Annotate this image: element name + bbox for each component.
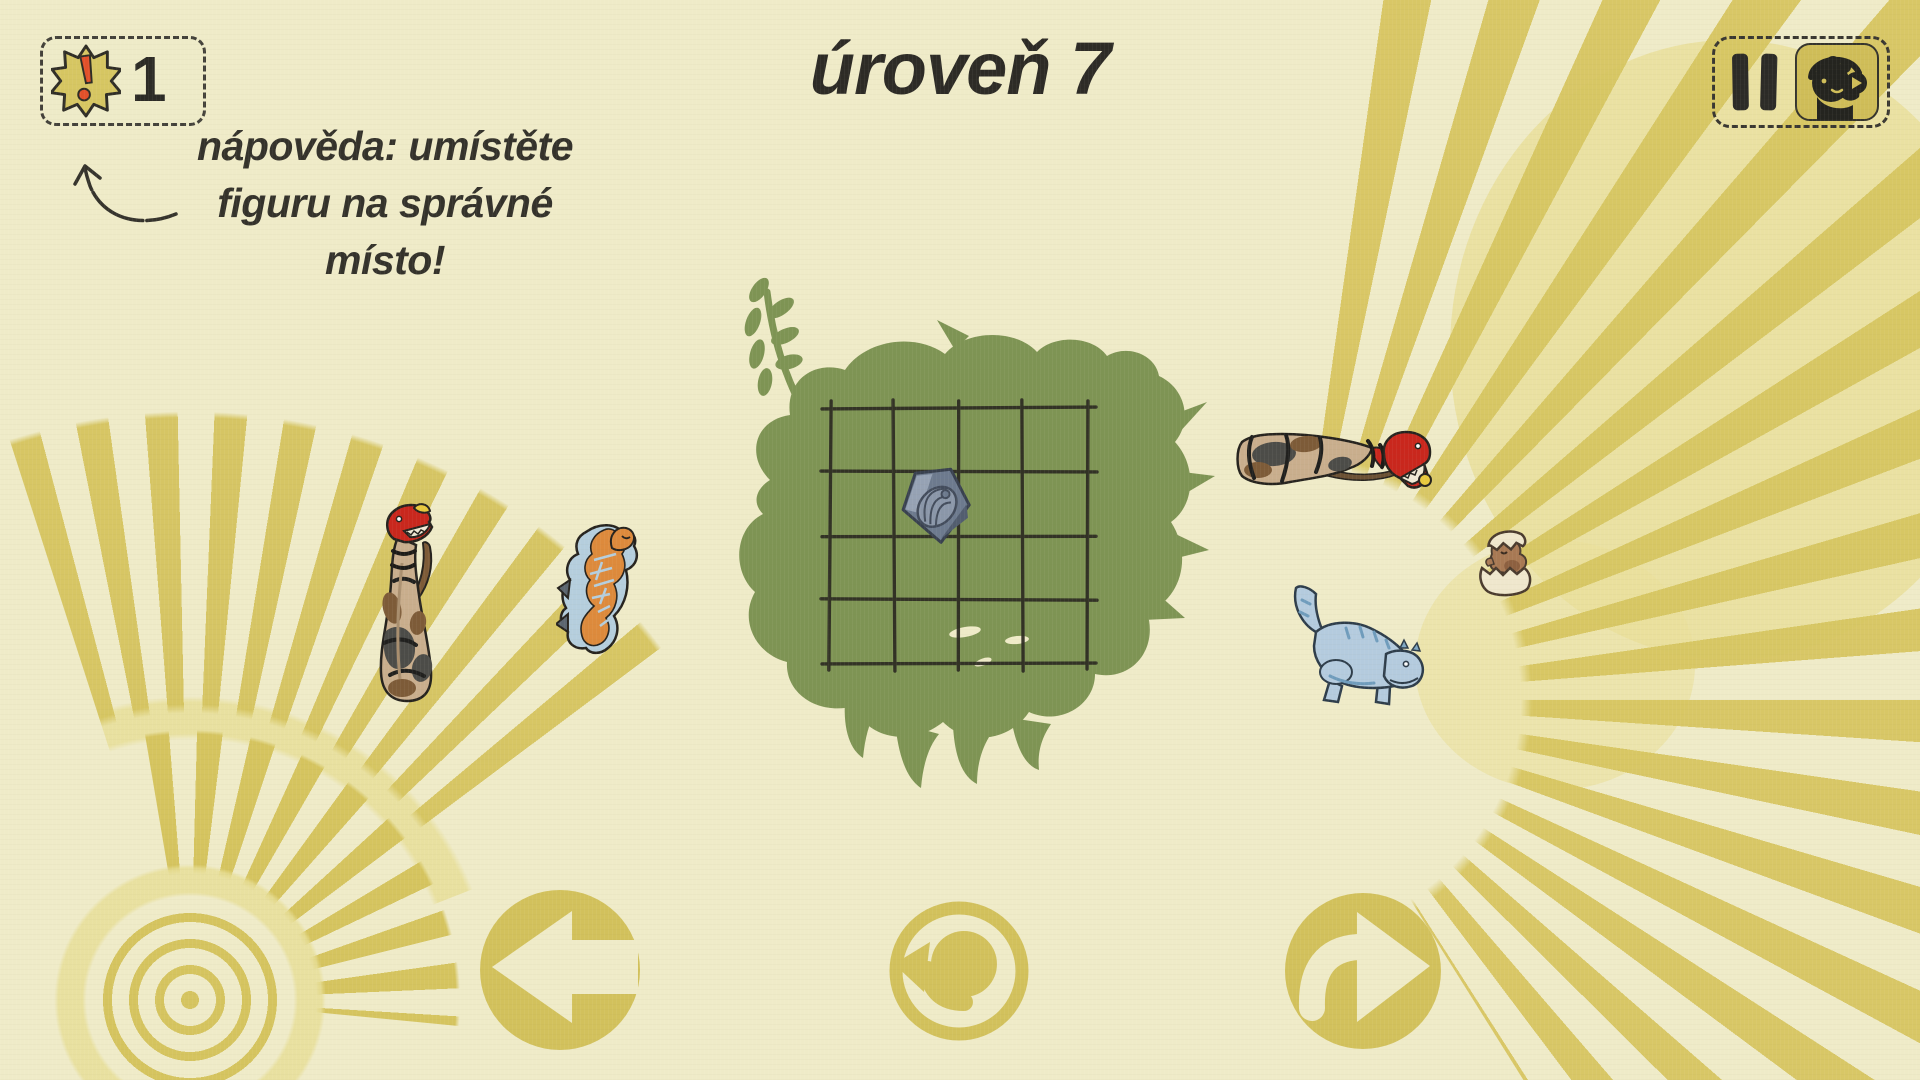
striped-raptor-lying-piece[interactable] [1232, 424, 1436, 500]
blue-carnotaurus-piece[interactable] [1286, 580, 1428, 708]
restart-button[interactable] [886, 898, 1032, 1044]
forward-button[interactable] [1284, 892, 1442, 1050]
back-button[interactable] [478, 888, 642, 1052]
ammonite-fossil-ribs-outer [0, 390, 800, 1080]
undo-rotate-icon [894, 908, 1022, 1034]
orange-lizard-piece[interactable] [556, 522, 642, 658]
exclamation-burst-icon [51, 44, 121, 118]
hint-line-1: nápověda: umístěte [140, 118, 630, 175]
pause-button[interactable] [1723, 44, 1789, 120]
hint-counter-button[interactable]: 1 [40, 36, 206, 126]
ammonite-fossil-shell-wash [50, 860, 330, 1080]
hint-text: nápověda: umístěte figuru na správné mís… [140, 118, 630, 289]
scallop-shell-wash [1415, 540, 1695, 790]
dino-headphones-icon [1795, 43, 1879, 121]
ammonite-fossil-decoration [0, 690, 500, 1080]
controls-box [1712, 36, 1890, 128]
hint-line-2: figuru na správné [140, 175, 630, 232]
ammonite-fossil-spiral-core [85, 895, 295, 1080]
striped-raptor-standing-piece[interactable] [372, 503, 440, 703]
ammonite-fossil-ribs-middle [0, 720, 470, 1080]
game-screen: 1 nápověda: umístěte figuru na správné m… [0, 0, 1920, 1080]
hint-line-3: místo! [140, 232, 630, 289]
audio-button[interactable] [1795, 43, 1879, 121]
level-title: úroveň 7 [660, 26, 1260, 111]
hatching-egg-piece[interactable] [1470, 528, 1540, 600]
pause-icon [1723, 44, 1789, 120]
leaf-sprig-decoration [741, 275, 804, 410]
hint-count: 1 [131, 47, 167, 111]
board-grid[interactable] [818, 396, 1100, 676]
